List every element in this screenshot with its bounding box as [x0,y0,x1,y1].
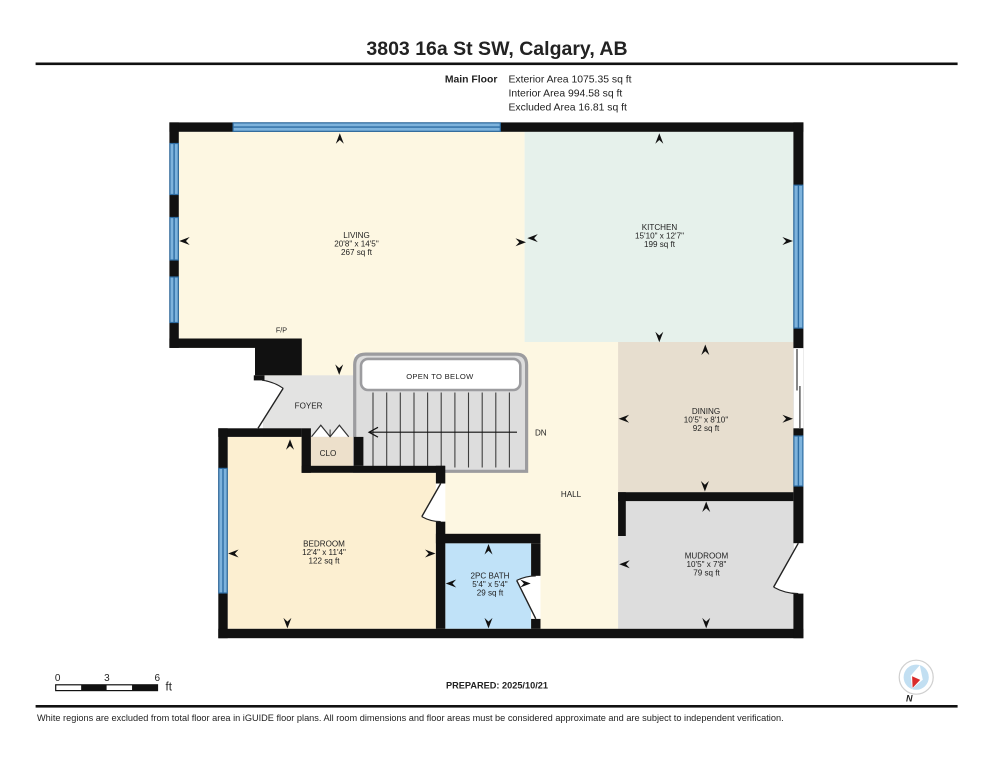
svg-text:267 sq ft: 267 sq ft [341,248,373,257]
svg-text:CLO: CLO [320,449,337,458]
svg-text:0: 0 [55,673,61,684]
svg-text:F/P: F/P [276,325,287,334]
svg-text:199 sq ft: 199 sq ft [644,240,676,249]
svg-text:3: 3 [104,673,110,684]
svg-text:29 sq ft: 29 sq ft [477,589,504,598]
svg-text:3803 16a St SW, Calgary, AB: 3803 16a St SW, Calgary, AB [366,38,627,60]
svg-text:92 sq ft: 92 sq ft [693,424,720,433]
svg-text:122 sq ft: 122 sq ft [308,557,340,566]
svg-text:79 sq ft: 79 sq ft [693,569,720,578]
svg-text:White regions are excluded fro: White regions are excluded from total fl… [37,713,784,723]
svg-text:HALL: HALL [561,490,582,499]
svg-text:OPEN TO BELOW: OPEN TO BELOW [406,372,474,381]
svg-text:N: N [906,693,913,703]
svg-text:Main Floor: Main Floor [445,75,498,86]
svg-text:Interior Area 994.58 sq ft: Interior Area 994.58 sq ft [509,89,623,100]
svg-text:FOYER: FOYER [295,401,323,410]
svg-text:6: 6 [155,673,161,684]
svg-text:Exterior Area 1075.35 sq ft: Exterior Area 1075.35 sq ft [509,75,632,86]
svg-text:PREPARED: 2025/10/21: PREPARED: 2025/10/21 [446,681,548,691]
svg-text:ft: ft [166,682,173,694]
svg-text:Excluded Area 16.81 sq ft: Excluded Area 16.81 sq ft [509,103,628,114]
svg-text:DN: DN [535,428,547,437]
